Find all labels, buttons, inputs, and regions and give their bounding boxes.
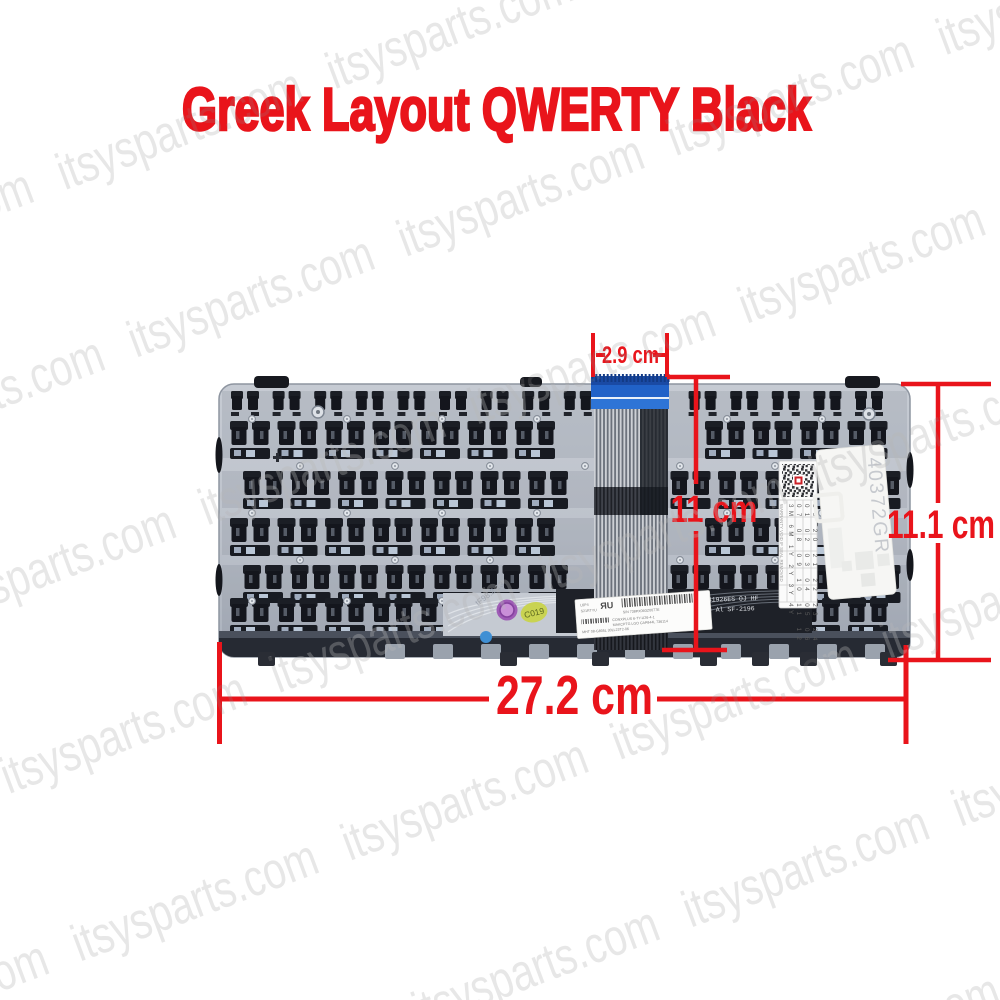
svg-text:3M 6M 1Y 2Y 3Y 4Y: 3M 6M 1Y 2Y 3Y 4Y [787,504,794,618]
svg-text:itsysparts.com: itsysparts.com [64,828,326,973]
svg-text:11.1 cm: 11.1 cm [887,503,995,547]
svg-text:itsysparts.com: itsysparts.com [746,962,1000,1000]
svg-text:itsysparts.com: itsysparts.com [334,728,596,873]
svg-text:ЯU: ЯU [600,600,614,611]
svg-text:L6P4: L6P4 [580,603,589,608]
svg-text:itsysparts.com: itsysparts.com [0,929,56,1000]
svg-text:itsysparts.com: itsysparts.com [135,996,397,1000]
svg-text:07 08 09 10 11 12: 07 08 09 10 11 12 [795,504,802,645]
svg-text:itsysparts.com: itsysparts.com [405,895,667,1000]
svg-text:itsysparts.com: itsysparts.com [944,694,1000,839]
svg-text:itsysparts.com: itsysparts.com [390,124,652,269]
svg-text:itsysparts.com: itsysparts.com [120,225,382,370]
svg-text:itsysparts.com: itsysparts.com [135,996,397,1000]
svg-text:itsysparts.com: itsysparts.com [929,0,1000,67]
svg-text:19 20 21 22 23 24: 19 20 21 22 23 24 [811,504,818,646]
svg-text:itsysparts.com: itsysparts.com [0,493,183,638]
svg-text:itsysparts.com: itsysparts.com [0,158,41,303]
svg-text:itsysparts.com: itsysparts.com [0,325,112,470]
svg-text:itsysparts.com: itsysparts.com [675,794,937,939]
svg-text:itsysparts.com: itsysparts.com [0,661,255,806]
svg-text:01 02 03 04 05 06: 01 02 03 04 05 06 [803,504,810,646]
svg-text:itsysparts.com: itsysparts.com [731,191,993,336]
